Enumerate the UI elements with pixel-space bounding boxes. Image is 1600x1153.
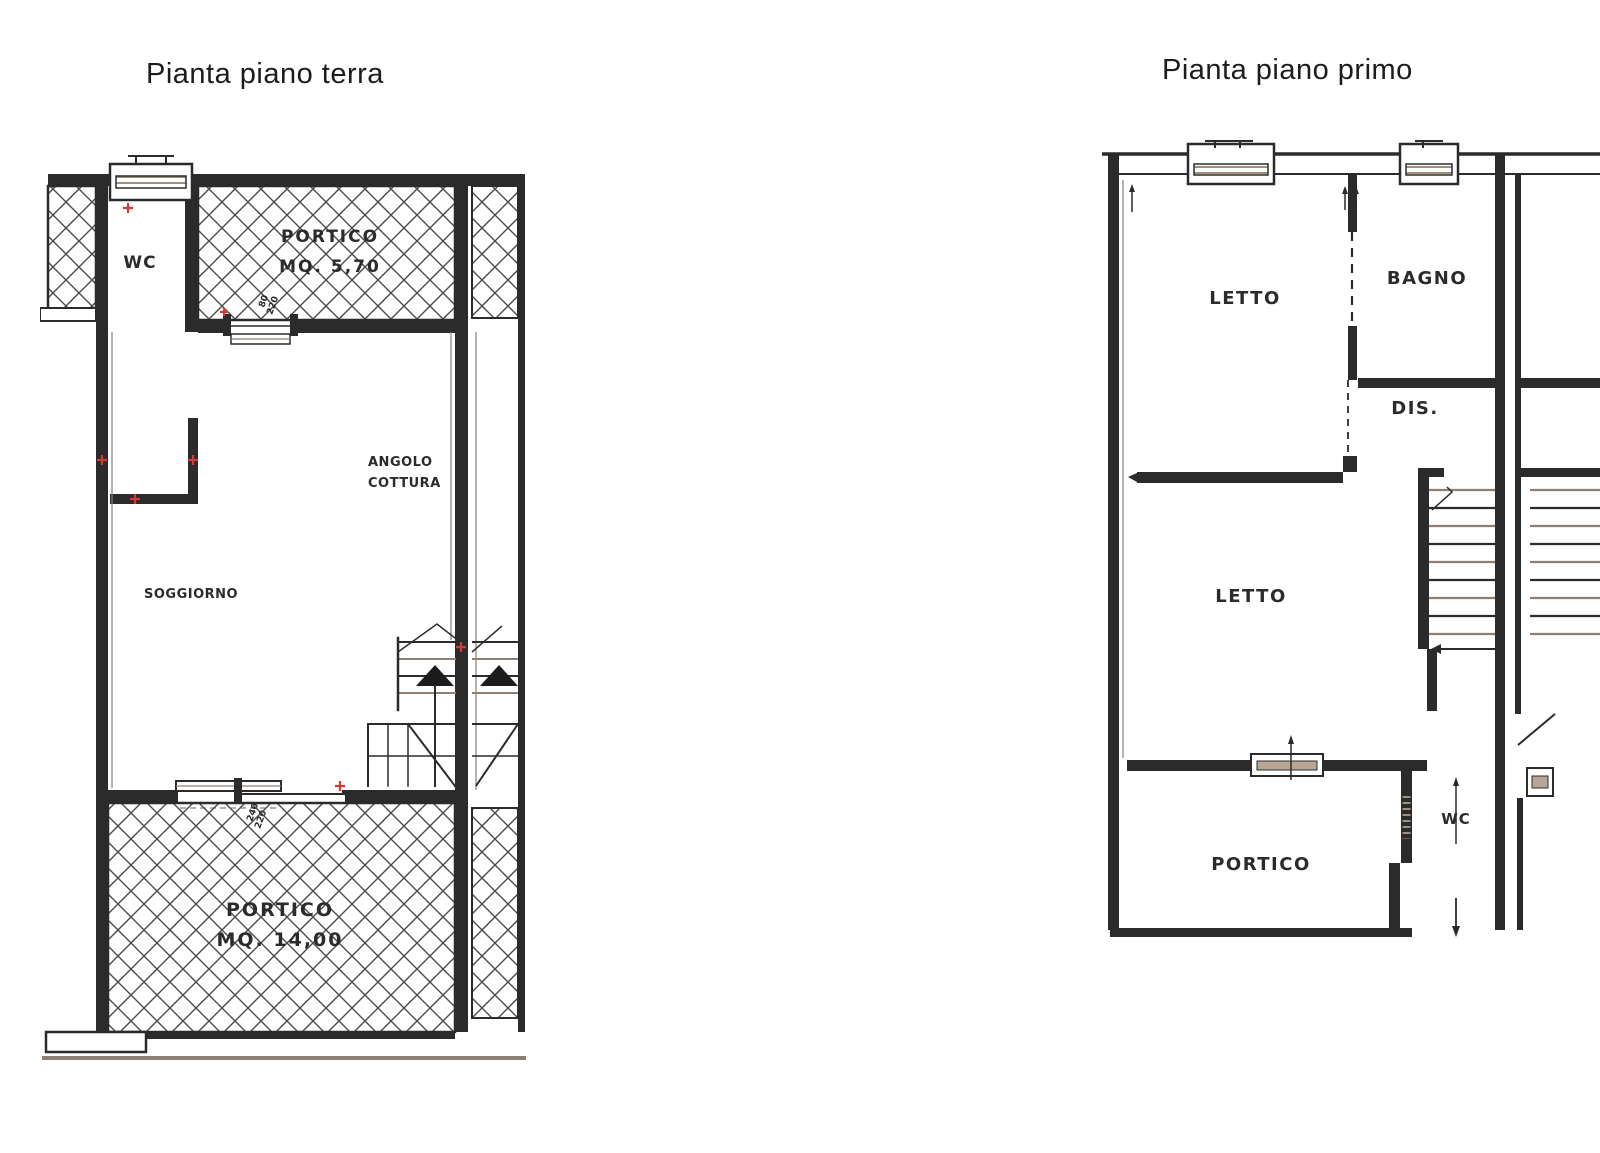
- ff-dis-wall-stub: [1343, 456, 1357, 472]
- gf-pilaster-hatch: [48, 186, 96, 318]
- ff-stair-treads: [1429, 487, 1495, 634]
- ff-dis-wall-arrow-left: [1128, 473, 1137, 482]
- gf-neighbor-edge-wall: [518, 174, 525, 1032]
- ff-bagno-bottom-wall: [1358, 378, 1495, 388]
- gf-portico-bottom-area: MQ. 14,00: [217, 929, 344, 951]
- gf-angolo-cottura-line1: ANGOLO: [368, 455, 433, 470]
- gf-left-wall-stub: [40, 308, 96, 321]
- gf-neighbor-stairs: [472, 626, 518, 786]
- ff-bagno-label: BAGNO: [1387, 268, 1467, 289]
- ff-stair-left-wall: [1418, 477, 1429, 649]
- gf-portico-bottom-wall-right: [292, 320, 455, 333]
- gf-stairs: [368, 624, 455, 786]
- gf-angolo-cottura-line2: COTTURA: [368, 476, 441, 491]
- gf-soggiorno-bottom-wall-left: [108, 790, 178, 803]
- ff-dis-label: DIS.: [1391, 398, 1438, 419]
- ff-left-wall: [1108, 154, 1119, 930]
- ff-letto-top-label: LETTO: [1209, 288, 1281, 309]
- gf-portico-bottom-wall-left: [198, 320, 225, 333]
- gf-neighbor-top-hatch: [472, 186, 518, 318]
- gf-portico-top-name: PORTICO: [281, 227, 379, 247]
- gf-wc-label: WC: [123, 253, 156, 273]
- gf-bottom-wall: [96, 1032, 455, 1039]
- gf-portico-top-area: MQ. 5,70: [279, 257, 381, 277]
- ff-party-wall: [1495, 154, 1505, 930]
- gf-neighbor-bottom-hatch: [472, 808, 518, 1018]
- ff-wc-left-wall-mid: [1401, 843, 1412, 863]
- ff-stair-bottom-arrow: [1431, 644, 1495, 654]
- ff-neighbor-fragment: [1515, 174, 1600, 930]
- ff-dis-wall: [1137, 472, 1343, 483]
- ff-corner-tick: [1129, 184, 1135, 212]
- gf-partition-horizontal: [110, 494, 198, 504]
- first-floor-plan: LETTO BAGNO DIS. LETTO WC PORTICO: [1075, 140, 1600, 940]
- gf-soggiorno-bottom-wall-right: [342, 790, 455, 803]
- gf-party-wall: [455, 174, 468, 1032]
- ff-portico-label: PORTICO: [1211, 854, 1311, 875]
- ff-wc-door-jamb: [1402, 795, 1411, 839]
- gf-footing: [46, 1032, 146, 1052]
- ff-stair-entry-hook: [1418, 468, 1444, 477]
- ff-window-right: [1400, 140, 1458, 184]
- gf-left-wall: [96, 186, 108, 1032]
- ff-bagno-wall-bottom: [1348, 326, 1357, 380]
- ff-letto-bottom-label: LETTO: [1215, 586, 1287, 607]
- first-floor-title: Pianta piano primo: [1162, 54, 1413, 87]
- gf-portico-top-hatch: [198, 186, 455, 320]
- ff-letto-bottom-wall-left: [1127, 760, 1253, 771]
- ff-wc-label: WC: [1441, 810, 1471, 828]
- ff-letto-bottom-wall-right: [1321, 760, 1427, 771]
- ff-landing-wall: [1427, 649, 1437, 711]
- ff-portico-bottom-wall: [1110, 928, 1412, 937]
- ff-window-left: [1188, 140, 1274, 184]
- ff-portico-window: [1251, 735, 1323, 780]
- ff-wc-down-arrow: [1452, 898, 1460, 937]
- gf-wc-window: [110, 156, 192, 200]
- ground-floor-plan: 80 220: [40, 150, 540, 1070]
- ff-wc-left-wall-lower: [1389, 863, 1400, 930]
- gf-soggiorno-label: SOGGIORNO: [144, 587, 238, 602]
- ground-floor-title: Pianta piano terra: [146, 58, 384, 91]
- gf-portico-bottom-name: PORTICO: [226, 899, 334, 921]
